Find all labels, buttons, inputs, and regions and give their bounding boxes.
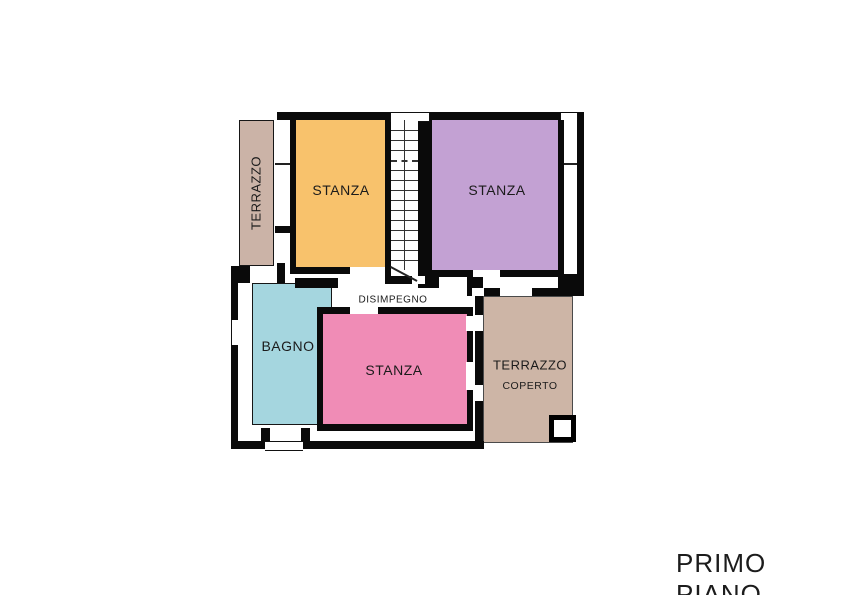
wall-bagno-top-bar (295, 278, 338, 288)
wall-window-jamb-right (301, 428, 310, 441)
stair-tread (391, 230, 418, 231)
wall-right-connector (558, 274, 584, 288)
stair-tread (391, 210, 418, 211)
stair-tread (391, 190, 418, 191)
label-stanza-top-right: STANZA (468, 182, 525, 198)
wall-window-jamb-left (261, 428, 270, 441)
page-title: PRIMO PIANO (676, 548, 842, 595)
wall-coperto-connector (467, 277, 483, 288)
wall-left-upper (231, 283, 238, 320)
wall-terrace-strip-bar (275, 226, 290, 233)
window-bagno-left (231, 320, 239, 345)
label-disimpegno: DISIMPEGNO (359, 295, 428, 306)
wall-orange-left (290, 112, 296, 274)
label-stanza-top-left: STANZA (312, 182, 369, 198)
window-tick-left (275, 163, 290, 165)
label-terrazzo-coperto-line2: COPERTO (502, 380, 557, 392)
stair-tread (391, 130, 418, 131)
floor-plan-canvas: TERRAZZO STANZA STANZA DISIMPEGNO BAGNO … (0, 0, 842, 595)
stair-tread (391, 140, 418, 141)
stair-tread (391, 170, 418, 171)
wall-stairs-right (418, 112, 432, 288)
window-top-right (560, 113, 578, 120)
pillar (549, 415, 576, 442)
wall-right (577, 112, 584, 296)
door-coperto-left-upper (475, 315, 483, 331)
stair-tread (391, 260, 418, 261)
label-terrazzo-left: TERRAZZO (249, 156, 264, 230)
stair-tread (391, 180, 418, 181)
window-bottom (265, 441, 303, 451)
wall-left-lower (231, 345, 238, 449)
staircase (391, 120, 418, 270)
stair-tread (391, 240, 418, 241)
window-stanza-bottom-right-1 (466, 316, 474, 331)
wall-bagno-corner (277, 263, 285, 283)
label-stanza-bottom: STANZA (365, 362, 422, 378)
wall-corridor-jamb (425, 273, 439, 288)
door-stanza-bottom (350, 307, 378, 314)
wall-left-step (231, 266, 250, 283)
door-coperto-left-lower (475, 385, 483, 401)
label-bagno: BAGNO (261, 338, 314, 354)
stair-tread (391, 160, 418, 162)
stair-tread (391, 150, 418, 151)
stair-tread (391, 250, 418, 251)
door-stanza-top-left (350, 267, 385, 274)
wall-orange-bottom (290, 267, 350, 274)
window-stanza-bottom-right-2 (466, 362, 474, 390)
label-terrazzo-coperto-line1: TERRAZZO (493, 358, 567, 373)
door-stanza-top-right (473, 270, 500, 277)
window-tick-right (564, 163, 577, 165)
door-corridor-coperto-1 (472, 288, 484, 296)
door-coperto-top (500, 288, 532, 296)
stair-tread (391, 200, 418, 201)
wall-purple-right (558, 112, 564, 277)
staircase-center-line (404, 120, 405, 270)
stair-tread (391, 220, 418, 221)
